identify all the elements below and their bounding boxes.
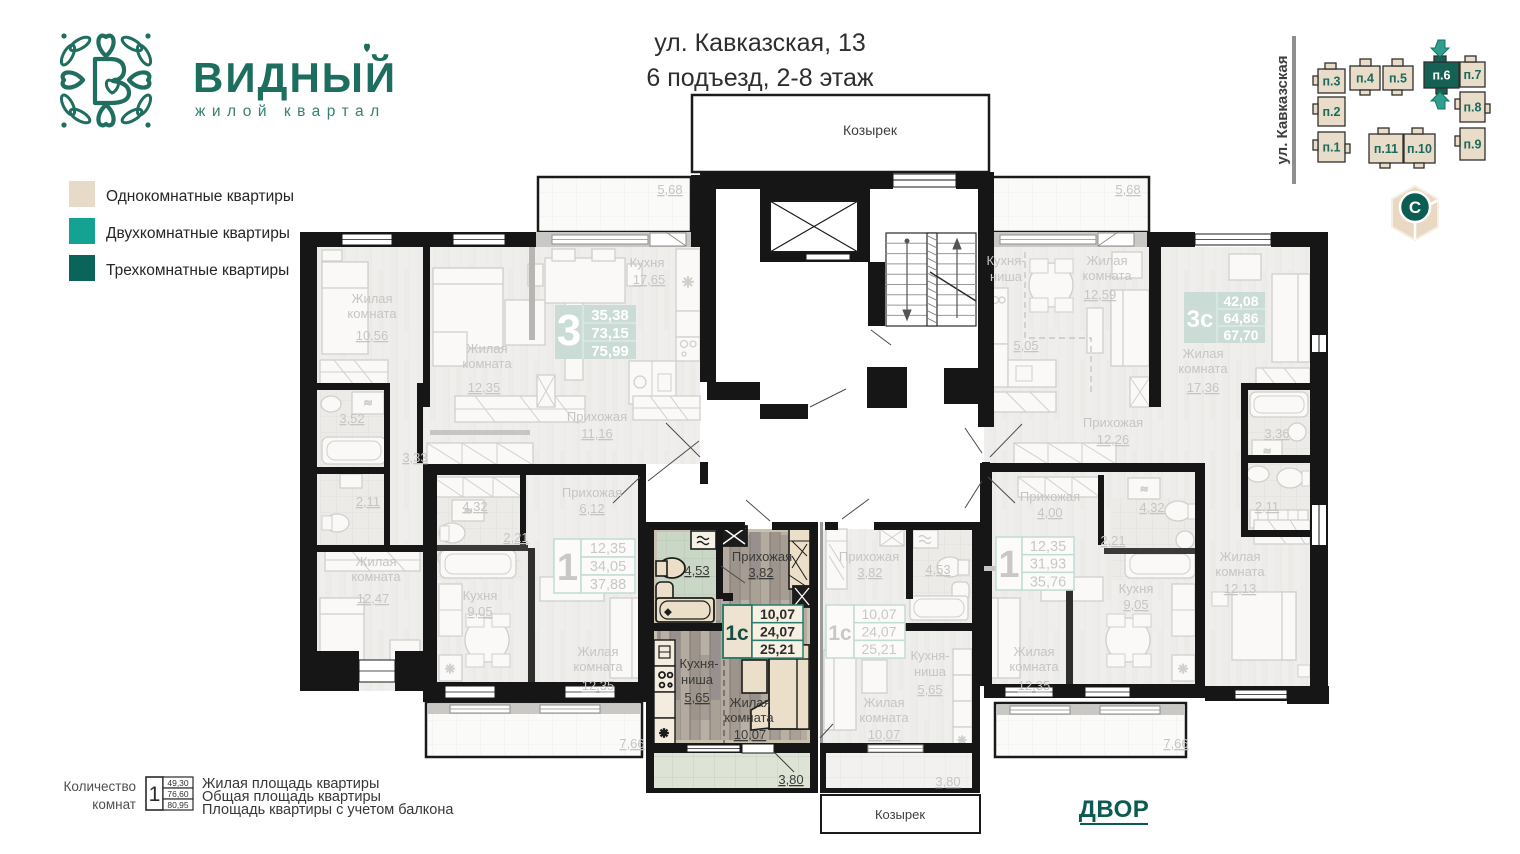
svg-text:п.8: п.8 — [1464, 101, 1482, 115]
svg-text:✳: ✳ — [1178, 662, 1188, 676]
svg-text:17,36: 17,36 — [1187, 380, 1220, 395]
svg-text:3,80: 3,80 — [935, 774, 960, 789]
svg-text:комната: комната — [462, 356, 512, 371]
svg-text:п.1: п.1 — [1323, 141, 1341, 155]
svg-text:35,76: 35,76 — [1030, 574, 1066, 590]
svg-text:7,66: 7,66 — [1163, 736, 1188, 751]
svg-text:Кухня-: Кухня- — [986, 253, 1025, 268]
svg-text:ул. Кавказская, 13: ул. Кавказская, 13 — [654, 29, 866, 57]
svg-text:76,60: 76,60 — [167, 789, 189, 799]
svg-text:64,86: 64,86 — [1223, 310, 1258, 326]
svg-text:12,35: 12,35 — [468, 380, 501, 395]
svg-text:≈: ≈ — [1141, 482, 1148, 496]
svg-text:5,68: 5,68 — [1115, 182, 1140, 197]
svg-text:комната: комната — [351, 569, 401, 584]
svg-text:комната: комната — [1082, 268, 1132, 283]
svg-text:2,11: 2,11 — [1255, 499, 1279, 514]
svg-text:ниша: ниша — [914, 664, 947, 679]
svg-text:Кухня: Кухня — [1119, 581, 1154, 596]
svg-text:80,95: 80,95 — [167, 800, 189, 810]
svg-text:3,33: 3,33 — [402, 450, 427, 465]
svg-text:Кухня-: Кухня- — [910, 648, 949, 663]
svg-text:Прихожая: Прихожая — [839, 549, 899, 564]
svg-text:4,00: 4,00 — [1037, 505, 1062, 520]
svg-text:31,93: 31,93 — [1030, 557, 1066, 573]
svg-text:п.7: п.7 — [1464, 68, 1482, 82]
svg-text:Жилая: Жилая — [466, 341, 507, 356]
svg-text:Козырек: Козырек — [875, 807, 925, 822]
svg-text:10,07: 10,07 — [734, 727, 767, 742]
svg-text:С: С — [1409, 198, 1421, 217]
svg-text:✳: ✳ — [659, 728, 668, 740]
svg-text:◆: ◆ — [665, 609, 671, 616]
svg-text:п.10: п.10 — [1407, 142, 1432, 156]
svg-text:6 подъезд, 2-8 этаж: 6 подъезд, 2-8 этаж — [646, 64, 874, 92]
svg-text:ВИДНЫЙ: ВИДНЫЙ — [193, 53, 397, 101]
svg-text:3с: 3с — [1187, 306, 1214, 333]
svg-text:4,53: 4,53 — [684, 563, 709, 578]
svg-text:24,07: 24,07 — [760, 624, 795, 640]
svg-text:Жилая: Жилая — [351, 291, 392, 306]
svg-text:комната: комната — [1215, 564, 1265, 579]
svg-text:3: 3 — [557, 306, 581, 355]
svg-text:1с: 1с — [828, 622, 852, 645]
svg-text:ниша: ниша — [681, 672, 714, 687]
svg-text:75,99: 75,99 — [591, 343, 629, 360]
svg-text:п.9: п.9 — [1464, 138, 1482, 152]
svg-text:3,82: 3,82 — [748, 565, 773, 580]
svg-text:12,35: 12,35 — [1030, 539, 1066, 555]
svg-text:п.4: п.4 — [1356, 72, 1374, 86]
svg-text:комната: комната — [724, 710, 774, 725]
svg-text:комната: комната — [573, 659, 623, 674]
svg-text:комнат: комнат — [92, 797, 136, 812]
svg-text:Кухня: Кухня — [463, 588, 498, 603]
svg-text:Трехкомнатные квартиры: Трехкомнатные квартиры — [106, 262, 289, 279]
svg-text:жилой квартал: жилой квартал — [195, 103, 386, 120]
svg-text:3,82: 3,82 — [857, 565, 882, 580]
svg-text:п.5: п.5 — [1389, 72, 1407, 86]
svg-text:49,30: 49,30 — [167, 778, 189, 788]
svg-text:п.6: п.6 — [1433, 69, 1451, 83]
svg-text:12,59: 12,59 — [1084, 287, 1117, 302]
svg-text:5,65: 5,65 — [684, 690, 709, 705]
svg-text:7,66: 7,66 — [619, 736, 644, 751]
svg-text:12,35: 12,35 — [1018, 678, 1051, 693]
svg-text:4,32: 4,32 — [1139, 500, 1164, 515]
svg-text:комната: комната — [347, 306, 397, 321]
svg-text:6,12: 6,12 — [579, 501, 604, 516]
svg-text:12,47: 12,47 — [357, 591, 390, 606]
svg-text:10,07: 10,07 — [861, 606, 896, 622]
svg-text:2,11: 2,11 — [356, 494, 380, 509]
svg-text:24,07: 24,07 — [861, 624, 896, 640]
svg-text:67,70: 67,70 — [1223, 327, 1258, 343]
svg-text:Площадь квартиры с учетом балк: Площадь квартиры с учетом балкона — [202, 802, 454, 818]
svg-text:Жилая: Жилая — [355, 554, 396, 569]
svg-text:ул. Кавказская: ул. Кавказская — [1274, 56, 1291, 165]
svg-text:12,13: 12,13 — [1224, 581, 1257, 596]
svg-text:1: 1 — [149, 783, 161, 806]
svg-text:Жилая: Жилая — [729, 695, 770, 710]
svg-text:Двухкомнатные квартиры: Двухкомнатные квартиры — [106, 225, 290, 242]
svg-text:73,15: 73,15 — [591, 325, 629, 342]
svg-text:11,16: 11,16 — [581, 426, 613, 441]
svg-text:Жилая: Жилая — [1219, 549, 1260, 564]
svg-text:Жилая: Жилая — [1013, 644, 1054, 659]
svg-text:Жилая: Жилая — [863, 695, 904, 710]
svg-text:9,05: 9,05 — [1123, 597, 1148, 612]
svg-text:2,21: 2,21 — [503, 530, 528, 545]
svg-text:25,21: 25,21 — [861, 641, 896, 657]
svg-text:2,21: 2,21 — [1100, 533, 1125, 548]
svg-text:1с: 1с — [725, 622, 749, 645]
svg-text:10,56: 10,56 — [356, 328, 389, 343]
svg-text:9,05: 9,05 — [467, 604, 492, 619]
svg-text:12,35: 12,35 — [590, 541, 626, 557]
svg-text:5,68: 5,68 — [657, 182, 682, 197]
svg-text:✳: ✳ — [682, 274, 694, 290]
svg-text:37,88: 37,88 — [590, 577, 626, 593]
svg-text:✳: ✳ — [445, 662, 455, 676]
svg-text:1: 1 — [557, 547, 578, 589]
svg-text:п.3: п.3 — [1323, 75, 1341, 89]
svg-text:Козырек: Козырек — [843, 122, 898, 138]
svg-text:25,21: 25,21 — [760, 641, 795, 657]
svg-text:комната: комната — [1009, 659, 1059, 674]
svg-text:Прихожая: Прихожая — [1020, 489, 1080, 504]
svg-text:п.11: п.11 — [1374, 142, 1398, 156]
svg-text:34,05: 34,05 — [590, 559, 626, 575]
svg-text:5,65: 5,65 — [917, 682, 942, 697]
svg-text:12,26: 12,26 — [1097, 432, 1130, 447]
svg-text:3,52: 3,52 — [339, 411, 364, 426]
svg-text:Прихожая: Прихожая — [562, 485, 622, 500]
svg-text:Жилая: Жилая — [1182, 346, 1223, 361]
svg-text:35,38: 35,38 — [591, 307, 629, 324]
svg-text:Жилая: Жилая — [577, 644, 618, 659]
svg-text:17,65: 17,65 — [633, 272, 666, 287]
svg-text:10,07: 10,07 — [868, 727, 901, 742]
svg-text:Жилая: Жилая — [1086, 253, 1127, 268]
svg-text:3,80: 3,80 — [778, 772, 803, 787]
svg-text:≈: ≈ — [364, 395, 371, 410]
svg-text:Кухня: Кухня — [630, 255, 665, 270]
svg-text:42,08: 42,08 — [1223, 293, 1258, 309]
svg-text:Однокомнатные квартиры: Однокомнатные квартиры — [106, 188, 294, 205]
svg-text:п.2: п.2 — [1323, 105, 1341, 119]
svg-text:Прихожая: Прихожая — [1083, 415, 1143, 430]
svg-text:4,53: 4,53 — [925, 562, 950, 577]
svg-text:4,32: 4,32 — [462, 499, 487, 514]
svg-text:ниша: ниша — [990, 269, 1023, 284]
svg-text:ДВОР: ДВОР — [1079, 796, 1150, 823]
svg-text:1: 1 — [998, 544, 1019, 586]
svg-text:3,36: 3,36 — [1264, 426, 1289, 441]
svg-text:Количество: Количество — [64, 779, 137, 794]
svg-text:Прихожая: Прихожая — [567, 409, 627, 424]
svg-text:10,07: 10,07 — [760, 606, 795, 622]
svg-text:Кухня-: Кухня- — [679, 656, 718, 671]
svg-text:Прихожая: Прихожая — [732, 549, 792, 564]
svg-text:комната: комната — [859, 710, 909, 725]
svg-text:5,05: 5,05 — [1013, 338, 1038, 353]
svg-text:комната: комната — [1178, 361, 1228, 376]
svg-text:12,35: 12,35 — [582, 678, 615, 693]
